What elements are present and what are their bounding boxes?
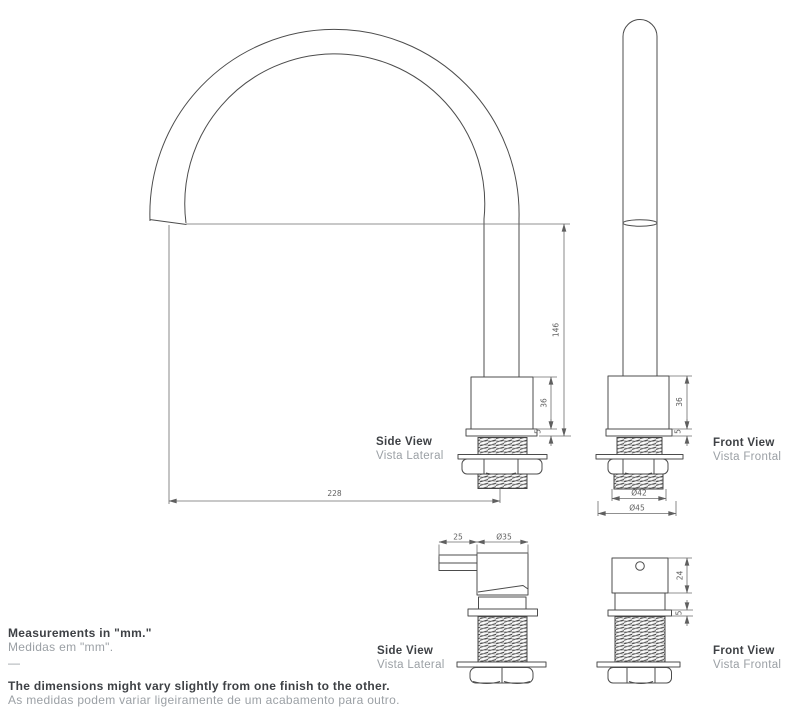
top-front-view-label-en: Front View (713, 437, 781, 450)
washer-plate (457, 662, 546, 667)
bottom-front-view-label-en: Front View (713, 645, 781, 658)
bottom-front-view-label: Front View Vista Frontal (713, 645, 781, 672)
hex-nut (462, 459, 542, 475)
dim-handle-height: 24 (676, 571, 685, 581)
footer-measurements-en: Measurements in "mm." (8, 626, 152, 640)
handle-body (612, 558, 668, 593)
footer-measurements-pt: Medidas em "mm". (8, 640, 113, 654)
top-side-view (150, 29, 548, 503)
dim-base-body-front: 36 (675, 397, 684, 407)
spout-seam (623, 220, 657, 226)
hex-nut (608, 459, 668, 475)
base-body (471, 377, 533, 429)
spout-inner-arc (185, 54, 485, 223)
technical-drawing: 146 228 36 5 36 5 Ø4 (0, 0, 800, 711)
top-front-view (596, 19, 683, 489)
thread-lower (614, 474, 663, 489)
bottom-side-view-label: Side View Vista Lateral (377, 645, 445, 672)
spout-outer-arc (150, 29, 519, 221)
thread-upper (478, 438, 527, 455)
thread (615, 617, 665, 663)
dim-spout-height: 146 (552, 323, 561, 338)
top-side-view-label-pt: Vista Lateral (376, 450, 444, 463)
base-flange (466, 429, 537, 436)
bottom-side-view (439, 553, 546, 684)
washer-plate (597, 662, 680, 667)
dim-spout-reach: 228 (327, 489, 342, 498)
bottom-front-view-label-pt: Vista Frontal (713, 659, 781, 672)
bottom-side-view-label-en: Side View (377, 645, 445, 658)
hex-nut (608, 668, 672, 684)
thread-lower (478, 474, 527, 489)
spout-cap (623, 19, 657, 36)
dim-handle-flange: 5 (675, 610, 684, 615)
spout-tip-edge (150, 220, 187, 225)
thread-upper (617, 438, 662, 455)
handle-neck (615, 593, 665, 610)
top-side-view-label-en: Side View (376, 436, 444, 449)
dim-base-flange-front: 5 (674, 429, 683, 434)
footer-separator: — (8, 656, 20, 670)
base-body (608, 376, 669, 429)
base-flange (606, 429, 672, 436)
washer-plate (458, 455, 547, 460)
handle-flange (468, 609, 538, 616)
dim-base-flange-side: 5 (534, 429, 543, 434)
faucet-technical-drawing-page: 146 228 36 5 36 5 Ø4 (0, 0, 800, 711)
dim-flange-diameter: Ø45 (629, 504, 645, 513)
bottom-side-view-label-pt: Vista Lateral (377, 659, 445, 672)
dim-handle-diameter: Ø35 (496, 533, 512, 542)
handle-neck (479, 597, 527, 609)
dim-lever-length: 25 (453, 533, 463, 542)
bottom-front-view (597, 558, 680, 684)
dim-base-body-side: 36 (540, 398, 549, 408)
footer-note-en: The dimensions might vary slightly from … (8, 679, 390, 693)
top-front-view-label: Front View Vista Frontal (713, 437, 781, 464)
hex-nut (470, 668, 533, 684)
washer-plate (596, 455, 683, 460)
dim-thread-diameter: Ø42 (631, 489, 647, 498)
top-side-view-label: Side View Vista Lateral (376, 436, 444, 463)
handle-flange (608, 610, 672, 616)
thread (478, 617, 527, 663)
top-front-view-label-pt: Vista Frontal (713, 451, 781, 464)
footer-note-pt: As medidas podem variar ligeiramente de … (8, 693, 400, 707)
